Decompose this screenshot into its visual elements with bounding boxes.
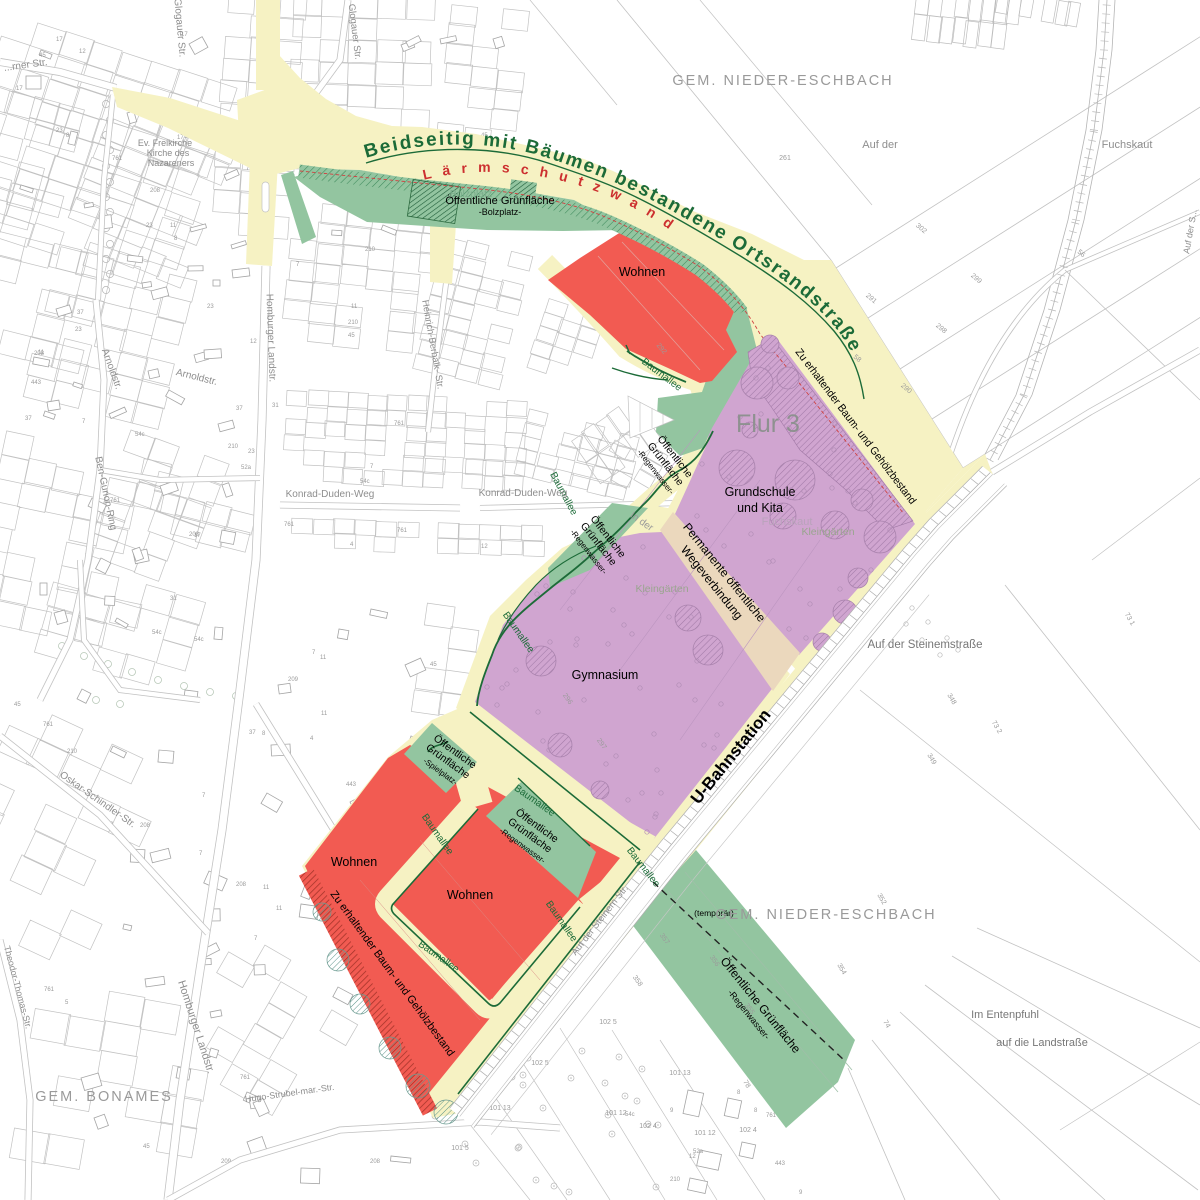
- svg-text:443: 443: [775, 1161, 786, 1167]
- svg-text:208: 208: [34, 351, 45, 357]
- svg-text:GEM. NIEDER-ESCHBACH: GEM. NIEDER-ESCHBACH: [672, 73, 893, 89]
- svg-text:208: 208: [150, 188, 161, 194]
- svg-text:102 4: 102 4: [639, 1123, 657, 1130]
- svg-text:17: 17: [56, 37, 63, 43]
- svg-text:209: 209: [288, 677, 299, 683]
- svg-text:23: 23: [248, 449, 255, 455]
- svg-text:23: 23: [146, 223, 153, 229]
- svg-text:45: 45: [14, 702, 21, 708]
- svg-text:101 13: 101 13: [489, 1105, 511, 1112]
- svg-text:auf die Landstraße: auf die Landstraße: [996, 1037, 1088, 1049]
- svg-text:761: 761: [394, 421, 405, 427]
- svg-text:Konrad-Duden-Weg: Konrad-Duden-Weg: [286, 489, 375, 500]
- svg-text:Grundschule: Grundschule: [725, 485, 796, 499]
- svg-text:Wohnen: Wohnen: [331, 855, 377, 869]
- svg-text:Wohnen: Wohnen: [447, 888, 493, 902]
- svg-text:Wohnen: Wohnen: [619, 265, 665, 279]
- svg-text:443: 443: [31, 380, 42, 386]
- svg-text:52a: 52a: [241, 465, 252, 471]
- svg-text:37: 37: [236, 406, 243, 412]
- svg-text:12: 12: [689, 1154, 696, 1160]
- svg-text:45: 45: [143, 1144, 150, 1150]
- svg-text:11: 11: [351, 304, 358, 310]
- svg-text:210: 210: [670, 1177, 681, 1183]
- svg-text:11: 11: [276, 906, 283, 912]
- svg-text:102 5: 102 5: [599, 1019, 617, 1026]
- svg-text:210: 210: [228, 444, 239, 450]
- svg-text:210: 210: [67, 749, 78, 755]
- svg-text:45: 45: [430, 662, 437, 668]
- svg-text:-Bolzplatz-: -Bolzplatz-: [479, 207, 522, 217]
- svg-text:761: 761: [766, 1113, 777, 1119]
- svg-text:Konrad-Duden-Weg: Konrad-Duden-Weg: [479, 488, 568, 499]
- svg-text:GEM. BONAMES: GEM. BONAMES: [35, 1089, 173, 1105]
- svg-text:761: 761: [284, 522, 295, 528]
- svg-text:Im Entenpfuhl: Im Entenpfuhl: [971, 1009, 1039, 1021]
- svg-text:761: 761: [397, 528, 408, 534]
- svg-text:Flur 3: Flur 3: [736, 410, 800, 438]
- svg-text:37: 37: [25, 416, 32, 422]
- svg-text:210: 210: [365, 247, 376, 253]
- svg-text:und Kita: und Kita: [737, 501, 783, 515]
- svg-text:17: 17: [194, 533, 201, 539]
- svg-text:Kirche des: Kirche des: [147, 148, 190, 158]
- svg-text:11: 11: [320, 655, 327, 661]
- svg-text:210: 210: [348, 320, 359, 326]
- svg-text:11: 11: [321, 711, 328, 717]
- svg-text:17: 17: [16, 86, 23, 92]
- svg-text:101 12: 101 12: [605, 1110, 627, 1117]
- svg-text:11: 11: [263, 885, 270, 891]
- svg-text:Auf der Steinemstraße: Auf der Steinemstraße: [867, 639, 982, 651]
- svg-text:54c: 54c: [360, 479, 370, 485]
- svg-text:761: 761: [240, 1075, 251, 1081]
- svg-text:23: 23: [56, 128, 63, 134]
- svg-text:761: 761: [112, 156, 123, 162]
- svg-text:102 4: 102 4: [739, 1127, 757, 1134]
- svg-text:Fuchskaut: Fuchskaut: [1102, 139, 1153, 151]
- svg-text:443: 443: [346, 782, 357, 788]
- svg-text:Nazareners: Nazareners: [148, 158, 195, 168]
- svg-text:GEM. NIEDER-ESCHBACH: GEM. NIEDER-ESCHBACH: [715, 907, 936, 923]
- svg-text:Gymnasium: Gymnasium: [572, 668, 639, 682]
- svg-text:208: 208: [140, 823, 151, 829]
- svg-text:23: 23: [207, 304, 214, 310]
- svg-text:23: 23: [75, 327, 82, 333]
- svg-text:Ev. Freikirche: Ev. Freikirche: [138, 138, 192, 148]
- svg-text:Kleingärten: Kleingärten: [801, 526, 854, 538]
- svg-text:101 13: 101 13: [669, 1070, 691, 1077]
- svg-text:12: 12: [79, 49, 86, 55]
- svg-text:54c: 54c: [135, 432, 145, 438]
- svg-text:37: 37: [77, 310, 84, 316]
- svg-text:761: 761: [43, 722, 54, 728]
- svg-text:31: 31: [272, 403, 279, 409]
- svg-text:Kleingärten: Kleingärten: [635, 583, 688, 595]
- svg-text:54c: 54c: [152, 630, 162, 636]
- svg-text:54c: 54c: [194, 637, 204, 643]
- svg-text:31: 31: [170, 596, 177, 602]
- svg-text:45: 45: [348, 333, 355, 339]
- svg-text:208: 208: [370, 1159, 381, 1165]
- svg-text:37: 37: [249, 730, 256, 736]
- svg-text:11: 11: [170, 223, 177, 229]
- svg-text:101 5: 101 5: [451, 1145, 469, 1152]
- svg-text:761: 761: [44, 987, 55, 993]
- svg-text:12: 12: [481, 544, 488, 550]
- svg-text:12: 12: [250, 339, 257, 345]
- svg-text:208: 208: [236, 882, 247, 888]
- svg-text:101 12: 101 12: [694, 1130, 716, 1137]
- svg-text:261: 261: [779, 155, 791, 162]
- svg-text:Bolzplatz: Bolzplatz: [450, 188, 493, 200]
- svg-text:102 5: 102 5: [531, 1060, 549, 1067]
- svg-text:Auf der: Auf der: [862, 139, 898, 151]
